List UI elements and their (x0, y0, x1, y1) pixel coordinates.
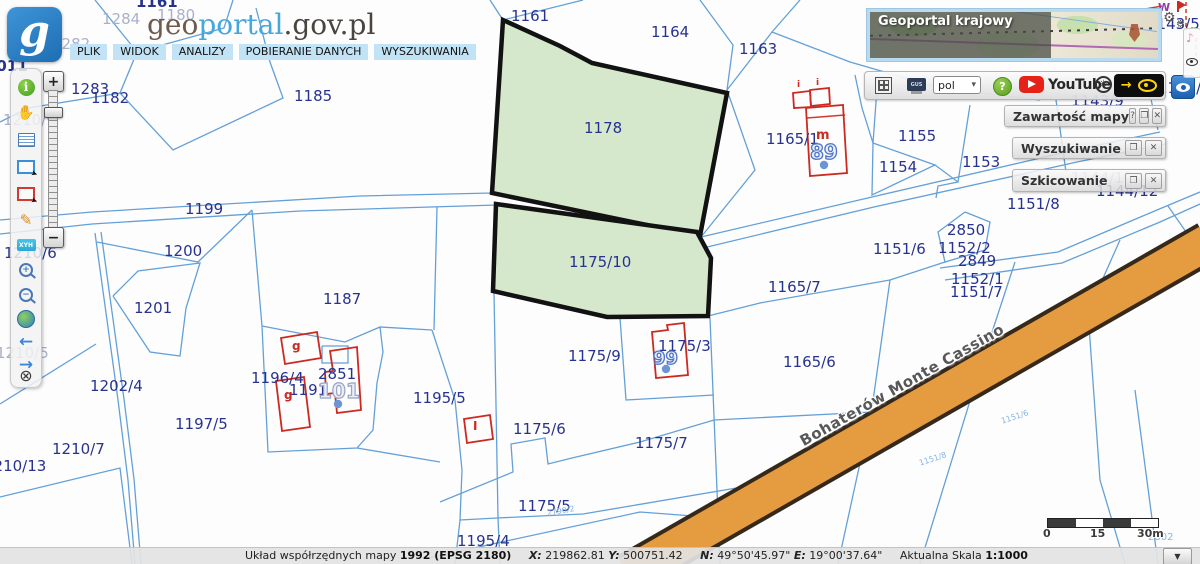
x-label: X: (529, 549, 542, 562)
blue-select-rect-icon: ➤ (17, 160, 35, 174)
layers-grid-icon[interactable] (875, 77, 892, 94)
building-outline (276, 377, 310, 431)
building-outline-line (807, 115, 845, 118)
menu-item-widok[interactable]: WIDOK (113, 44, 165, 60)
parcel-boundary-line (101, 232, 141, 564)
chevron-down-icon: ▾ (971, 80, 976, 90)
map-flag-marker-icon (1177, 1, 1179, 12)
settings-gears-icon[interactable]: ⚙ (1163, 10, 1176, 26)
zoom-out-tool-button[interactable]: − (16, 285, 36, 305)
n-label: N: (700, 549, 714, 562)
site-title: geoportal.gov.pl (147, 8, 375, 41)
panel-title: Wyszukiwanie (1021, 141, 1125, 156)
building-outline (793, 91, 811, 108)
parcel-boundary-line (262, 326, 383, 452)
x-value: 219862.81 (545, 549, 605, 562)
building-outline (464, 415, 493, 443)
panel-minimize-button[interactable]: ❐ (1125, 140, 1142, 156)
language-select[interactable]: pol▾ (933, 76, 981, 94)
red-select-rect-icon: ➤ (17, 187, 35, 201)
menu-item-pobieranie-danych[interactable]: POBIERANIE DANYCH (239, 44, 369, 60)
scale-value: 1:1000 (985, 549, 1028, 562)
geoportal-app: 2771/4 Bohaterów Monte Cassino 301111611… (0, 0, 1200, 564)
eye-icon (1176, 83, 1190, 92)
identify-tool-button[interactable]: i (16, 77, 36, 97)
parcel-boundary-line (434, 207, 437, 330)
parcel-boundary-line (357, 448, 440, 462)
form-icon (18, 133, 35, 147)
parcel-boundary-line (703, 144, 1165, 248)
scalebar-label-start: 0 (1043, 527, 1051, 540)
panel-close-button[interactable]: ✕ (1145, 173, 1162, 189)
full-extent-button[interactable] (16, 309, 36, 329)
coord-system-label: Układ współrzędnych mapy (245, 549, 396, 562)
parcel-boundary-line (700, 0, 733, 90)
logo-g-icon: g (19, 12, 50, 52)
film-reel-icon[interactable]: ✳ (1095, 76, 1112, 93)
scale-label: Aktualna Skala (900, 549, 982, 562)
coordinates-xyh-button[interactable]: XYH (16, 235, 36, 255)
parcel-boundary-line (503, 0, 583, 20)
panel-close-button[interactable]: ✕ (1152, 108, 1162, 124)
cursor-icon: ➤ (30, 168, 39, 179)
pan-tool-button[interactable]: ✋ (16, 103, 36, 123)
note-icon[interactable]: ♪ (1186, 31, 1194, 45)
status-bar-text: Układ współrzędnych mapy 1992 (EPSG 2180… (245, 549, 1028, 562)
draw-tool-button[interactable]: ✎ (16, 210, 36, 230)
panel-title: Zawartość mapy (1013, 109, 1129, 124)
parcel-boundary-line (432, 330, 462, 564)
main-menu: PLIKWIDOKANALIZYPOBIERANIE DANYCHWYSZUKI… (70, 44, 476, 60)
parcel-boundary-line (460, 518, 497, 520)
parcel-boundary-line (380, 327, 432, 330)
zoom-slider-handle[interactable] (44, 107, 63, 118)
scalebar-segment (1103, 519, 1131, 527)
language-value: pol (938, 79, 955, 92)
help-button[interactable]: ? (993, 77, 1012, 96)
scalebar-segment (1076, 519, 1104, 527)
scalebar-label-end: 30m (1137, 527, 1164, 540)
cursor-icon: ➤ (30, 195, 39, 206)
status-bar: Układ współrzędnych mapy 1992 (EPSG 2180… (0, 547, 1200, 564)
parcel-boundary-line (872, 143, 935, 195)
wcag-eye-icon (1138, 79, 1157, 92)
zoom-out-button[interactable]: − (43, 227, 64, 248)
panel-minimize-button[interactable]: ❐ (1139, 108, 1149, 124)
parcel-boundary-line (708, 262, 945, 316)
attributes-form-button[interactable] (16, 130, 36, 150)
panel-sketching[interactable]: Szkicowanie ❐ ✕ (1012, 169, 1166, 192)
parcel-boundary-line (252, 210, 262, 326)
globe-icon (17, 310, 35, 328)
menu-item-plik[interactable]: PLIK (70, 44, 107, 60)
panel-close-button[interactable]: ✕ (1145, 140, 1162, 156)
brand-portal: portal (198, 8, 283, 41)
visibility-toggle-button[interactable] (1171, 75, 1195, 99)
minimap-marker-icon (1129, 24, 1140, 42)
parcel-boundary-line (727, 0, 800, 90)
menu-item-wyszukiwania[interactable]: WYSZUKIWANIA (374, 44, 475, 60)
panel-title: Szkicowanie (1021, 173, 1125, 188)
scalebar-segment (1048, 519, 1076, 527)
youtube-play-icon (1019, 76, 1044, 93)
geoportal-logo[interactable]: g (7, 7, 62, 62)
quick-access-toolbar: GUS pol▾ ? YouTube ✳ → (864, 71, 1166, 100)
n-value: 49°50'45.97" (717, 549, 790, 562)
parcel-boundary-line (935, 105, 970, 182)
accessibility-wcag-toggle[interactable]: → (1114, 74, 1164, 97)
e-label: E: (794, 549, 806, 562)
zoom-in-tool-button[interactable]: + (16, 260, 36, 280)
info-icon: i (18, 79, 35, 96)
pencil-icon: ✎ (20, 211, 33, 229)
address-point-dot (334, 400, 342, 408)
parcel-boundary-line (494, 292, 500, 564)
map-tools-panel: i ✋ ➤ ➤ ✎ XYH + − ← → ⊗ (10, 68, 42, 388)
scalebar-label-mid: 15 (1090, 527, 1105, 540)
close-circle-icon: ⊗ (19, 366, 32, 385)
select-area-button[interactable]: ➤ (16, 157, 36, 177)
previous-view-button[interactable]: ← (16, 332, 36, 352)
e-value: 19°00'37.64" (809, 549, 882, 562)
overview-minimap[interactable]: Geoportal krajowy (866, 8, 1162, 62)
zoom-in-icon: + (19, 263, 33, 277)
parcel-boundary-line (113, 263, 200, 356)
small-eye-icon[interactable] (1186, 58, 1198, 66)
xyh-icon: XYH (17, 239, 36, 251)
brand-suffix: .gov.pl (283, 8, 375, 41)
y-value: 500751.42 (623, 549, 683, 562)
hand-icon: ✋ (17, 105, 34, 121)
menu-item-analizy[interactable]: ANALIZY (172, 44, 233, 60)
deselect-area-button[interactable]: ➤ (16, 184, 36, 204)
y-label: Y: (608, 549, 619, 562)
address-point-dot (820, 161, 828, 169)
building-outline (325, 347, 361, 413)
minimap-title: Geoportal krajowy (878, 14, 1013, 29)
parcel-boundary-line (95, 233, 135, 564)
panel-search[interactable]: Wyszukiwanie ❐ ✕ (1012, 137, 1166, 159)
wcag-arrow-icon: → (1121, 81, 1132, 91)
zoom-out-icon: − (19, 288, 33, 302)
selected-parcel-highlight[interactable] (492, 20, 727, 236)
gus-service-icon[interactable]: GUS (907, 78, 926, 91)
coord-system-value: 1992 (EPSG 2180) (400, 549, 511, 562)
parcel-boundary-line (936, 182, 958, 198)
panel-map-contents[interactable]: Zawartość mapy ? ❐ ✕ (1004, 105, 1166, 127)
panel-help-button[interactable]: ? (1129, 108, 1136, 124)
parcel-boundary-line (97, 210, 252, 262)
scalebar-segment (1131, 519, 1159, 527)
address-point-dot (662, 365, 670, 373)
brand-geo: geo (147, 8, 198, 41)
minimap-image: Geoportal krajowy (870, 12, 1158, 58)
scale-dropdown-button[interactable]: ▼ (1163, 548, 1192, 564)
building-outline (810, 88, 830, 106)
parcel-boundary-line (0, 205, 497, 234)
parcel-boundary-line (938, 212, 990, 262)
zoom-in-button[interactable]: + (43, 71, 64, 92)
panel-minimize-button[interactable]: ❐ (1125, 173, 1142, 189)
clear-selection-button[interactable]: ⊗ (16, 365, 36, 385)
arrow-left-icon: ← (19, 332, 33, 352)
